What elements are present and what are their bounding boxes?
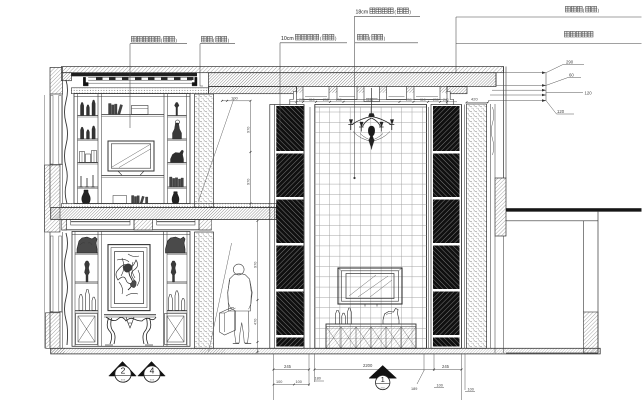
svg-text:xxx: xxx [121, 378, 126, 382]
svg-text:245: 245 [442, 364, 450, 369]
svg-text:100: 100 [468, 388, 474, 392]
svg-text:2200: 2200 [363, 363, 373, 368]
svg-text:970: 970 [246, 179, 250, 185]
svg-text:18cm: 18cm [356, 10, 369, 16]
svg-text:290: 290 [566, 60, 574, 65]
svg-text:4: 4 [150, 366, 155, 376]
svg-text:2: 2 [121, 366, 126, 376]
svg-text:290: 290 [433, 98, 439, 102]
svg-text:245: 245 [284, 364, 292, 369]
svg-text:970: 970 [253, 262, 257, 268]
svg-text:10cm: 10cm [281, 36, 294, 42]
svg-text:290: 290 [406, 98, 412, 102]
svg-text:420: 420 [471, 97, 478, 102]
svg-text:310: 310 [309, 98, 315, 102]
svg-text:189: 189 [411, 387, 417, 391]
svg-text:1: 1 [381, 375, 385, 384]
svg-text:290: 290 [336, 98, 342, 102]
svg-text:240: 240 [299, 98, 305, 102]
svg-text:120: 120 [557, 109, 565, 114]
svg-text:290: 290 [323, 98, 329, 102]
svg-text:xxx: xxx [381, 386, 386, 390]
svg-text:970: 970 [246, 127, 250, 133]
svg-text:100: 100 [296, 380, 302, 384]
svg-text:1140: 1140 [366, 98, 373, 102]
svg-text:60: 60 [569, 73, 574, 78]
svg-text:100: 100 [231, 96, 238, 101]
svg-text:240: 240 [443, 98, 449, 102]
svg-text:120: 120 [585, 91, 593, 96]
svg-text:470: 470 [253, 319, 257, 325]
svg-text:100: 100 [437, 384, 443, 388]
svg-text:100: 100 [276, 380, 282, 384]
svg-text:xxx: xxx [150, 378, 155, 382]
svg-text:180: 180 [315, 377, 321, 381]
svg-text:310: 310 [420, 98, 426, 102]
